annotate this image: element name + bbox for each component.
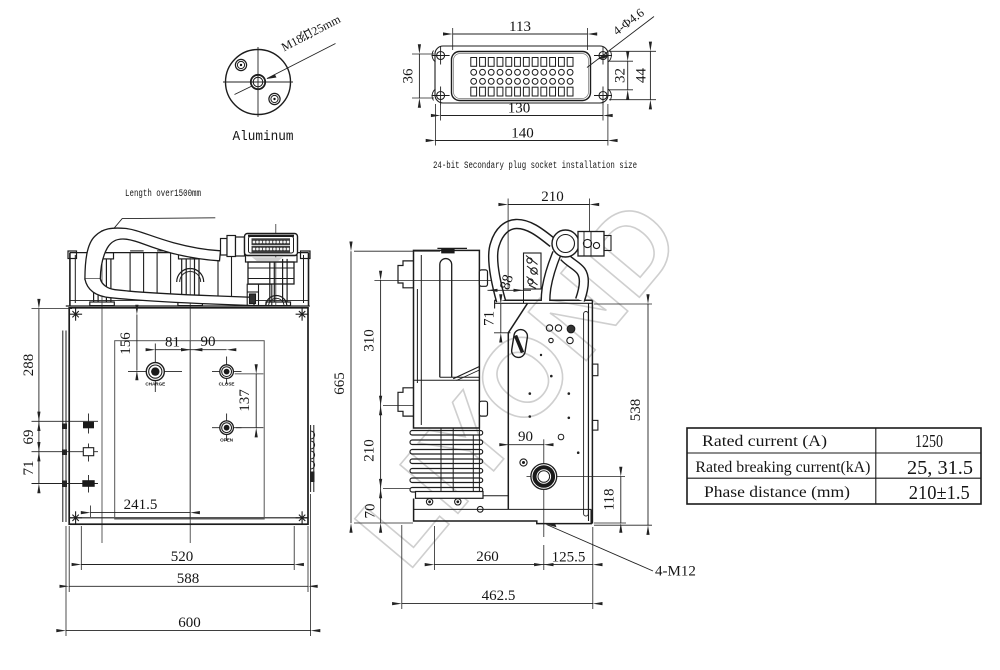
svg-text:90: 90 [201,334,216,350]
svg-text:69: 69 [21,430,37,445]
svg-text:Length over1500mm: Length over1500mm [125,188,201,200]
svg-text:90: 90 [518,429,533,445]
svg-text:Rated breaking current(kA): Rated breaking current(kA) [695,459,870,476]
svg-text:118: 118 [602,489,618,511]
svg-text:44: 44 [634,68,650,84]
svg-text:260: 260 [476,549,499,565]
svg-text:Phase distance (mm): Phase distance (mm) [704,484,850,501]
svg-text:156: 156 [118,332,134,355]
svg-text:210±1.5: 210±1.5 [909,482,970,504]
svg-text:288: 288 [21,354,37,377]
svg-text:462.5: 462.5 [482,588,516,604]
svg-text:588: 588 [177,571,200,587]
svg-text:OPEN: OPEN [220,437,234,442]
svg-text:25, 31.5: 25, 31.5 [907,457,973,479]
svg-text:Rated current (A): Rated current (A) [702,433,827,450]
svg-text:137: 137 [237,389,253,412]
svg-text:241.5: 241.5 [124,497,158,513]
svg-text:538: 538 [628,399,644,422]
svg-text:130: 130 [508,101,531,117]
svg-text:36: 36 [401,68,417,84]
svg-text:665: 665 [332,372,348,395]
svg-text:81: 81 [165,335,180,351]
svg-text:24-bit Secondary plug socket i: 24-bit Secondary plug socket installatio… [433,160,637,172]
svg-text:140: 140 [511,126,534,142]
svg-text:1250: 1250 [915,431,943,451]
svg-text:4-M12: 4-M12 [655,564,696,580]
svg-text:520: 520 [171,549,194,565]
svg-text:600: 600 [178,615,201,631]
svg-text:71: 71 [21,461,37,476]
svg-text:210: 210 [541,189,564,205]
svg-text:CLOSE: CLOSE [219,381,235,386]
svg-text:113: 113 [509,19,531,35]
svg-text:32: 32 [613,68,629,83]
svg-text:210: 210 [362,439,378,462]
svg-text:70: 70 [363,504,379,519]
svg-text:Aluminum: Aluminum [233,130,294,145]
svg-text:310: 310 [362,329,378,352]
svg-text:CHARGE: CHARGE [145,382,165,387]
svg-text:125.5: 125.5 [552,550,586,566]
svg-text:71: 71 [482,311,498,326]
